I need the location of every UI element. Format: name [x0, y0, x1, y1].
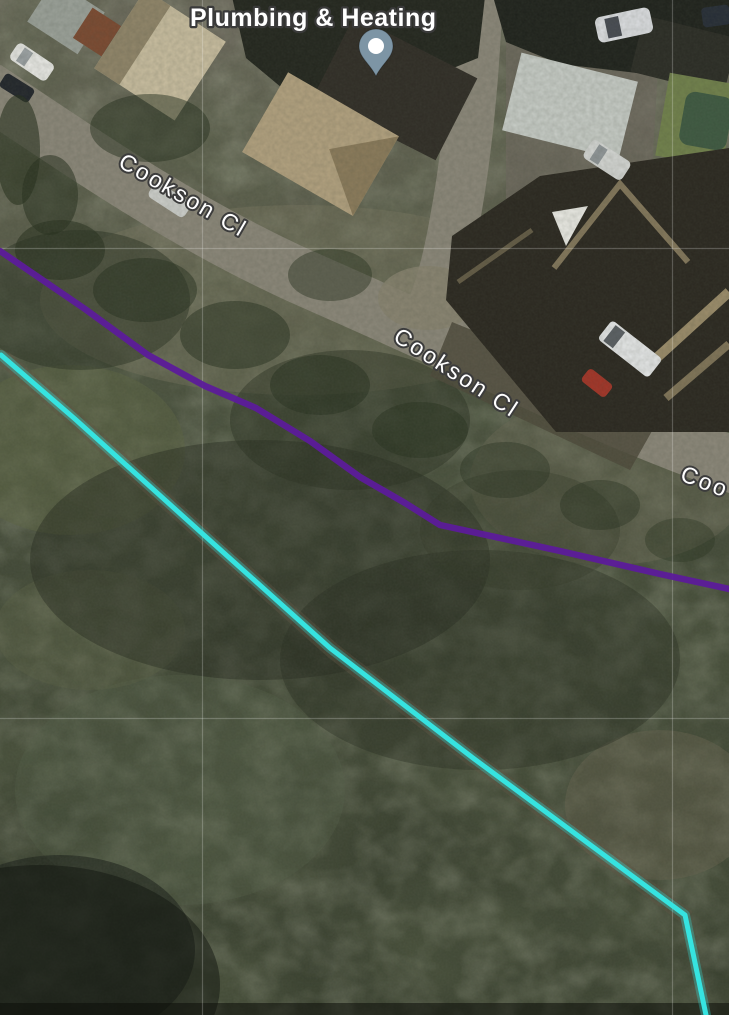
pin-dot: [368, 38, 384, 54]
bottom-dark-band: [0, 1003, 729, 1015]
satellite-scene: Plumbing & Heating Cookson Cl Cookson Cl…: [0, 0, 729, 1015]
place-label[interactable]: Plumbing & Heating: [190, 4, 437, 32]
map-canvas[interactable]: Plumbing & Heating Cookson Cl Cookson Cl…: [0, 0, 729, 1015]
